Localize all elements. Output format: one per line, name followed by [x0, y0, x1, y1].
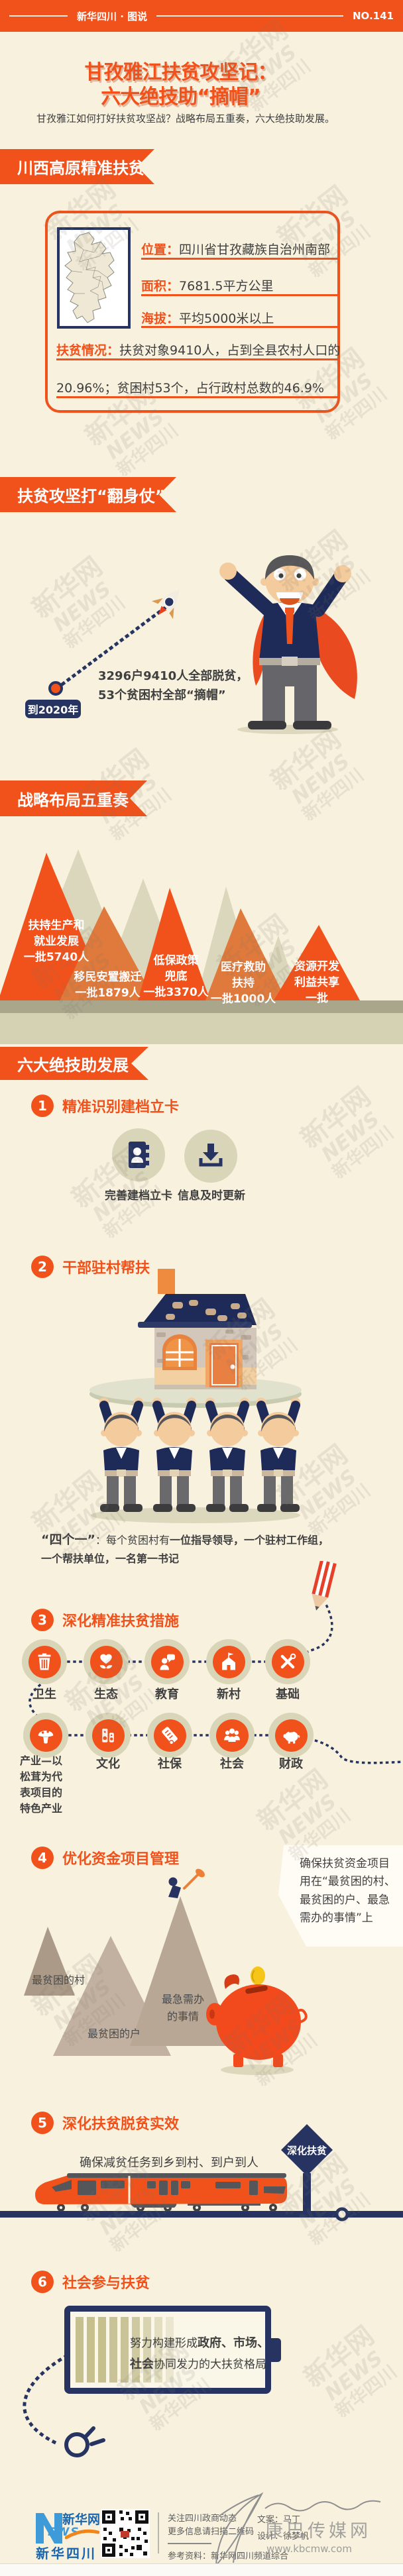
year-badge: 到2020年 — [25, 700, 81, 718]
feature-circle-village — [206, 1639, 251, 1684]
divider — [9, 15, 68, 17]
underline — [141, 326, 337, 328]
label-urgent-matter-2: 的事情 — [156, 2008, 209, 2023]
altitude-value: 平均5000米以上 — [179, 311, 274, 326]
item6-heading: 6 社会参与扶贫 — [31, 2271, 150, 2293]
feature-label-society: 社会 — [202, 1754, 262, 1772]
svg-text:深化扶贫: 深化扶贫 — [287, 2145, 327, 2157]
mountain-label-5: 资源开发 利益共享 一批 — [278, 959, 355, 1006]
scroll-icon — [160, 1725, 180, 1745]
feature-label-finance: 财政 — [261, 1754, 321, 1772]
feature-label-social-security: 社保 — [140, 1754, 200, 1772]
mountain-label-1: 扶持生产和 就业发展 一批5740人 — [13, 918, 99, 965]
feature-circle-finance — [268, 1713, 314, 1758]
qr-code — [101, 2509, 150, 2558]
feature-circle-ecology — [84, 1639, 129, 1684]
house-flag-icon — [219, 1652, 239, 1672]
location-value: 四川省甘孜藏族自治州南部 — [179, 242, 330, 257]
brand-region: 新华四川 — [36, 2543, 97, 2562]
item2-number-badge: 2 — [31, 1256, 54, 1278]
four-one-note: “四个一”：每个贫困村有一位指导领导，一个驻村工作组，一个帮扶单位，一名第一书记 — [41, 1530, 336, 1568]
funds-note-line4: 需办的事情”上 — [300, 1908, 373, 1925]
mountain-label-2: 移民安置搬迁 一批1879人 — [63, 969, 152, 1001]
feature-circle-culture — [86, 1713, 131, 1758]
house-carried-illustration — [66, 1269, 318, 1527]
stamp-squiggle — [264, 2498, 383, 2515]
poverty-value-2: 20.96%；贫困村53个，占行政村总数的46.9% — [56, 381, 324, 396]
feature-circle-infrastructure — [265, 1639, 310, 1684]
area-value: 7681.5平方公里 — [179, 279, 273, 294]
bottom-strip — [0, 2563, 403, 2576]
feature-circle-education — [144, 1639, 190, 1684]
feature-circle-social-security — [147, 1713, 192, 1758]
item1-number-badge: 1 — [31, 1095, 54, 1117]
masthead: 新华四川 · 图说 — [77, 9, 147, 23]
feature-label-infrastructure: 基础 — [258, 1685, 317, 1702]
section-banner-1: 川西高原精准扶贫 — [0, 149, 154, 184]
tools-icon — [278, 1652, 298, 1672]
feature-label-village: 新村 — [199, 1685, 259, 1702]
mushroom-icon — [36, 1725, 56, 1745]
funds-note-line1: 确保扶贫资金项目 — [300, 1854, 390, 1870]
item5-heading: 5 深化扶贫脱贫实效 — [31, 2112, 179, 2134]
funds-note-line3: 最贫困的户、最急 — [300, 1890, 390, 1907]
feature-label-health: 卫生 — [15, 1685, 74, 1702]
infographic-page: 新华四川 · 图说 NO.141 甘孜雅江扶贫攻坚记： 六大绝技助“摘帽” 甘孜… — [0, 0, 403, 2576]
contact-card-icon — [123, 1140, 154, 1170]
location-label: 位置： — [141, 242, 179, 257]
mountain-label-4: 医疗救助 扶持 一批1000人 — [207, 959, 280, 1007]
altitude-label: 海拔： — [141, 311, 179, 326]
label-poorest-household: 最贫困的户 — [87, 2025, 141, 2041]
goal-line2: 53个贫困村全部“摘帽” — [98, 686, 226, 703]
underline — [141, 294, 337, 296]
route-dot — [48, 681, 63, 696]
feature-circle-society — [209, 1713, 255, 1758]
feature-label-education: 教育 — [137, 1685, 197, 1702]
sign-deepen-poverty-relief: 深化扶贫 — [272, 2120, 345, 2216]
superhero-illustration — [219, 543, 384, 735]
info-row-poverty-1: 扶贫情况：扶贫对象9410人，占到全县农村人口的 — [56, 341, 340, 358]
label-poorest-village: 最贫困的村 — [32, 1971, 85, 1987]
page-title-line2: 六大绝技助“摘帽” — [0, 80, 361, 109]
mountain-label-3: 低保政策 兜底 一批3370人 — [141, 953, 211, 1000]
county-map — [57, 227, 131, 329]
info-row-area: 面积：7681.5平方公里 — [141, 276, 274, 294]
poverty-value-1: 扶贫对象9410人，占到全县农村人口的 — [119, 343, 340, 358]
watermark: 新华网NEWS新华四川 — [299, 2322, 403, 2424]
piggy-icon — [281, 1725, 301, 1745]
section-banner-4: 六大绝技助发展 — [0, 1047, 148, 1080]
item5-number-badge: 5 — [31, 2112, 54, 2134]
pencil-icon — [306, 1561, 338, 1613]
speakers-icon — [98, 1725, 118, 1745]
footer-divider — [158, 2512, 159, 2553]
media-stamp-logo — [199, 2490, 272, 2569]
underline — [56, 396, 337, 398]
section-banner-2: 扶贫攻坚打“翻身仗” — [0, 477, 176, 512]
feature-label-ecology: 生态 — [76, 1685, 136, 1702]
power-cord-and-plug — [0, 2345, 159, 2471]
issue-number: NO.141 — [353, 10, 394, 22]
item1-heading: 1 精准识别建档立卡 — [31, 1095, 179, 1117]
item1-title: 精准识别建档立卡 — [62, 1095, 179, 1116]
feature-circle-industry — [23, 1713, 68, 1758]
stamp-name: 康巴传媒网 — [265, 2516, 371, 2542]
watermark: 新华网NEWS新华四川 — [266, 725, 370, 827]
rocket-icon — [147, 582, 190, 624]
feature-label-industry: 产业—以 松茸为代 表项目的 特色产业 — [20, 1753, 62, 1817]
teacher-icon — [157, 1652, 177, 1672]
swoosh-icon — [65, 2528, 99, 2540]
feature-label-culture: 文化 — [78, 1754, 138, 1772]
area-label: 面积： — [141, 279, 179, 294]
item6-title: 社会参与扶贫 — [62, 2271, 150, 2292]
section-banner-3: 战略布局五重奏 — [0, 780, 147, 816]
funds-note-line2: 用在“最贫困的村、 — [300, 1872, 396, 1888]
header-bar: 新华四川 · 图说 NO.141 — [0, 0, 403, 32]
page-subtitle: 甘孜雅江如何打好扶贫攻坚战？战略布局五重奏，六大绝技助发展。 — [0, 111, 371, 125]
item5-title: 深化扶贫脱贫实效 — [62, 2112, 179, 2133]
icon-circle-update — [184, 1130, 237, 1183]
info-row-location: 位置：四川省甘孜藏族自治州南部 — [141, 240, 330, 258]
underline — [141, 258, 337, 260]
icon-label-2: 信息及时更新 — [162, 1186, 261, 1203]
poverty-label: 扶贫情况： — [56, 343, 119, 358]
underline — [56, 358, 337, 360]
label-urgent-matter-1: 最急需办 — [156, 1990, 209, 2006]
eco-flower-icon — [96, 1652, 116, 1672]
info-row-poverty-2: 20.96%；贫困村53个，占行政村总数的46.9% — [56, 378, 324, 396]
info-row-altitude: 海拔：平均5000米以上 — [141, 309, 274, 327]
map-image — [60, 230, 128, 326]
people-icon — [222, 1725, 242, 1745]
feature-circle-health — [22, 1639, 67, 1684]
item6-number-badge: 6 — [31, 2271, 54, 2293]
watermark: 新华网NEWS新华四川 — [296, 1083, 400, 1185]
brand-name-cn: 新华网 — [62, 2510, 100, 2528]
divider — [156, 15, 343, 17]
stamp-url: www.kbcmw.com — [266, 2543, 352, 2555]
icon-circle-archive — [112, 1128, 165, 1181]
trash-icon — [34, 1652, 54, 1672]
download-icon — [196, 1141, 226, 1171]
